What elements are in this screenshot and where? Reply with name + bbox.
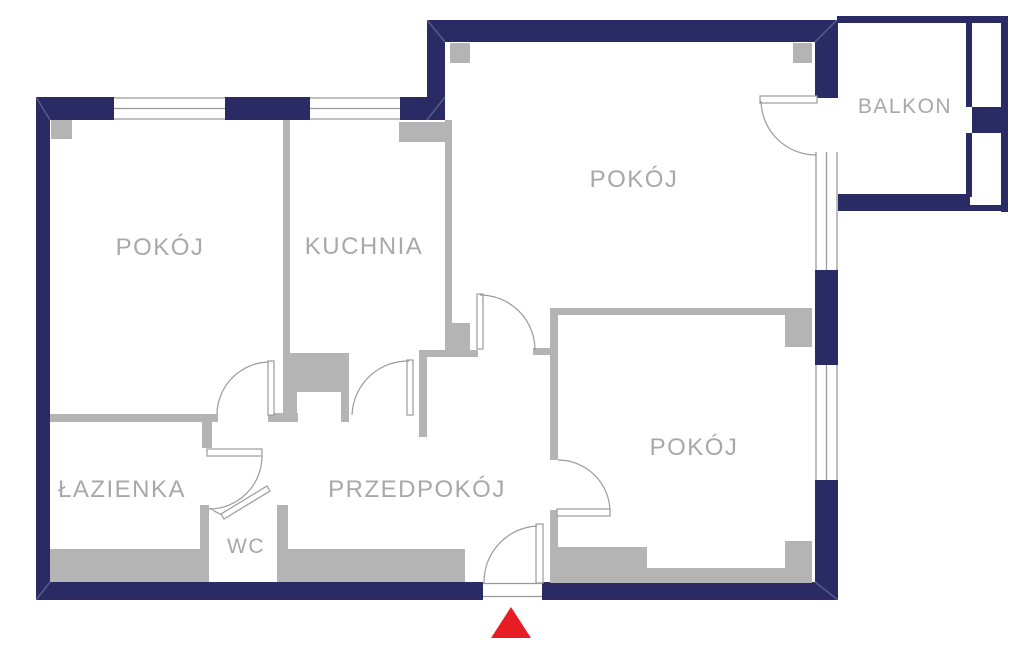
wall-pokoj-top-bottom	[550, 308, 812, 315]
balcony-door-arc	[761, 101, 816, 155]
pillar-top-right	[793, 43, 812, 63]
top-wall-segment-2	[225, 97, 310, 120]
pokoj-top-door-leaf	[477, 294, 483, 349]
wall-block-leg-right	[341, 392, 349, 422]
pokoj-bottom-door-arc	[558, 460, 610, 512]
kuchnia-door-leaf	[407, 360, 413, 415]
floorplan-canvas: POKÓJ KUCHNIA POKÓJ BALKON POKÓJ ŁAZIENK…	[0, 0, 1024, 648]
pokoj-bottom-door-leaf	[557, 509, 610, 516]
doors	[207, 96, 817, 583]
room-label-pokoj-left: POKÓJ	[116, 234, 205, 262]
balcony-window-inner-edge-2	[966, 133, 972, 197]
room-label-wc: WC	[227, 535, 265, 559]
wall-kuchnia-right	[445, 120, 452, 323]
room-label-pokoj-top: POKÓJ	[590, 166, 679, 194]
wall-wc-right	[277, 505, 288, 582]
bottom-exterior-wall-right	[542, 582, 838, 600]
wall-block-pokoj-top-right	[785, 308, 812, 347]
kuchnia-door-arc	[352, 361, 409, 415]
right-exterior-wall-top	[815, 22, 838, 98]
balcony-right-wall	[1001, 16, 1008, 212]
wall-band-lazienka-bottom	[50, 549, 200, 582]
entrance-door-leaf	[536, 524, 543, 583]
room-label-kuchnia: KUCHNIA	[305, 233, 424, 261]
balcony-window-divider	[972, 107, 1001, 133]
pokoj-top-door-arc	[480, 295, 535, 350]
wall-kuchnia-right-block	[445, 323, 470, 352]
wall-block-pokoj-bl	[550, 547, 647, 583]
room-label-pokoj-bottom: POKÓJ	[650, 434, 739, 462]
pillar-pokoj-top	[450, 43, 470, 63]
windows	[114, 97, 838, 600]
entrance-opening	[483, 582, 542, 600]
pokoj-left-door-arc	[217, 362, 269, 414]
lazienka-door-leaf	[207, 449, 262, 456]
bottom-exterior-wall-left	[36, 582, 483, 600]
pillar-top-left	[51, 120, 72, 139]
entrance-door-arc	[484, 526, 537, 583]
wall-wc-left	[200, 505, 209, 582]
wall-block-kuchnia-top	[399, 122, 448, 142]
balcony-door-opening	[815, 98, 838, 152]
wall-lazienka-top	[50, 414, 218, 422]
wall-block-pokoj-br	[785, 541, 812, 583]
pokoj-left-door-leaf	[268, 361, 274, 415]
room-label-lazienka: ŁAZIENKA	[58, 476, 186, 504]
room-label-balkon: BALKON	[858, 95, 952, 119]
balcony-door-leaf	[760, 96, 817, 103]
entrance-marker-triangle	[491, 607, 531, 638]
right-exterior-wall-mid	[815, 270, 838, 365]
room-label-przedpokoj: PRZEDPOKÓJ	[328, 476, 506, 504]
wall-pokoj-kuchnia	[283, 120, 290, 353]
top-exterior-wall-upper	[427, 20, 837, 42]
wc-door-leaf	[221, 486, 270, 519]
balcony-bottom-wall-thin	[970, 205, 1008, 211]
balcony-window-inner-edge-1	[966, 23, 972, 107]
wall-kuchnia-bottom	[419, 350, 478, 357]
wall-pokoj-bottom-left-upper	[550, 308, 558, 460]
wall-lazienka-right-stub	[202, 422, 212, 448]
wall-block-center	[283, 353, 349, 392]
wall-band-przedpokoj-bottom	[288, 549, 465, 582]
wall-przedpokoj-right-jamb	[419, 352, 427, 437]
right-exterior-wall-bottom	[815, 480, 838, 600]
balcony-bottom-wall	[837, 194, 970, 211]
balcony-top-wall	[837, 16, 1008, 23]
left-exterior-wall	[36, 97, 50, 600]
